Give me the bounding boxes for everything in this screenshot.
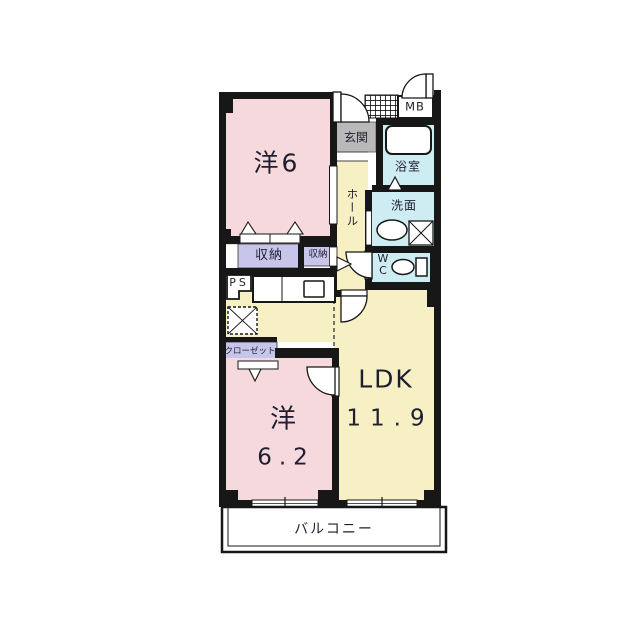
floor-plan: 洋6 玄関 MB 浴室 洗面 ホール WC 収納 収納 PS クローゼット LD…	[0, 0, 640, 640]
floor-plan-drawing	[0, 0, 640, 640]
ldk-label: LDK	[358, 365, 414, 393]
ldk-size-label: 11.9	[346, 406, 433, 431]
wall-bath-left	[376, 122, 383, 192]
wall-washroom-wc	[365, 246, 437, 253]
wall-bath-top	[376, 118, 437, 125]
washroom-label: 洗面	[391, 199, 417, 212]
washroom-sliding-door	[366, 211, 372, 245]
balcony-label: バルコニー	[294, 522, 374, 537]
entrance-label: 玄関	[344, 131, 368, 144]
wall-bath-washroom	[372, 185, 437, 192]
bathroom-label: 浴室	[395, 160, 421, 173]
room-yo62-label: 洋	[270, 406, 296, 435]
ldk-floor	[334, 290, 434, 500]
ldk-door-leaf	[341, 290, 367, 296]
wall-wc-right	[430, 253, 436, 282]
hall-label: ホール	[346, 188, 359, 229]
wall-closet-top	[222, 337, 277, 342]
room-yo62-size-label: 6.2	[257, 445, 315, 470]
toilet-bowl	[392, 260, 414, 275]
wall-left	[219, 92, 226, 507]
wall-storage-top-right	[300, 236, 337, 247]
wall-yo62-top	[275, 348, 339, 358]
wall-wc-bottom	[365, 282, 441, 290]
closet-label: クローゼット	[224, 347, 275, 356]
storage-large-label: 収納	[255, 249, 283, 263]
wall-between-storages	[298, 244, 304, 268]
pipe-space-label: PS	[229, 277, 249, 289]
entrance-step	[336, 152, 368, 161]
meter-box-door-arc	[402, 74, 426, 98]
room-yo6-label: 洋6	[254, 149, 301, 177]
toilet-tank	[416, 258, 427, 276]
yo6-sliding-door	[330, 166, 338, 224]
toilet-label: WC	[377, 253, 390, 277]
storage-small-label: 収納	[308, 250, 327, 260]
entrance-door-leaf	[333, 92, 341, 122]
pillar-ldk-top-right	[427, 290, 434, 307]
meter-box-label: MB	[405, 101, 425, 114]
storage-small-opening	[330, 247, 338, 266]
meter-box-door-leaf	[426, 74, 433, 98]
wall-storage-top-left	[222, 236, 240, 244]
closet-door-strip	[238, 361, 278, 369]
wall-right	[434, 90, 441, 507]
kitchen-sink	[304, 281, 324, 297]
bathtub	[386, 126, 431, 154]
entrance-tile	[365, 95, 398, 118]
washbasin	[377, 220, 407, 240]
wall-top	[219, 92, 333, 99]
